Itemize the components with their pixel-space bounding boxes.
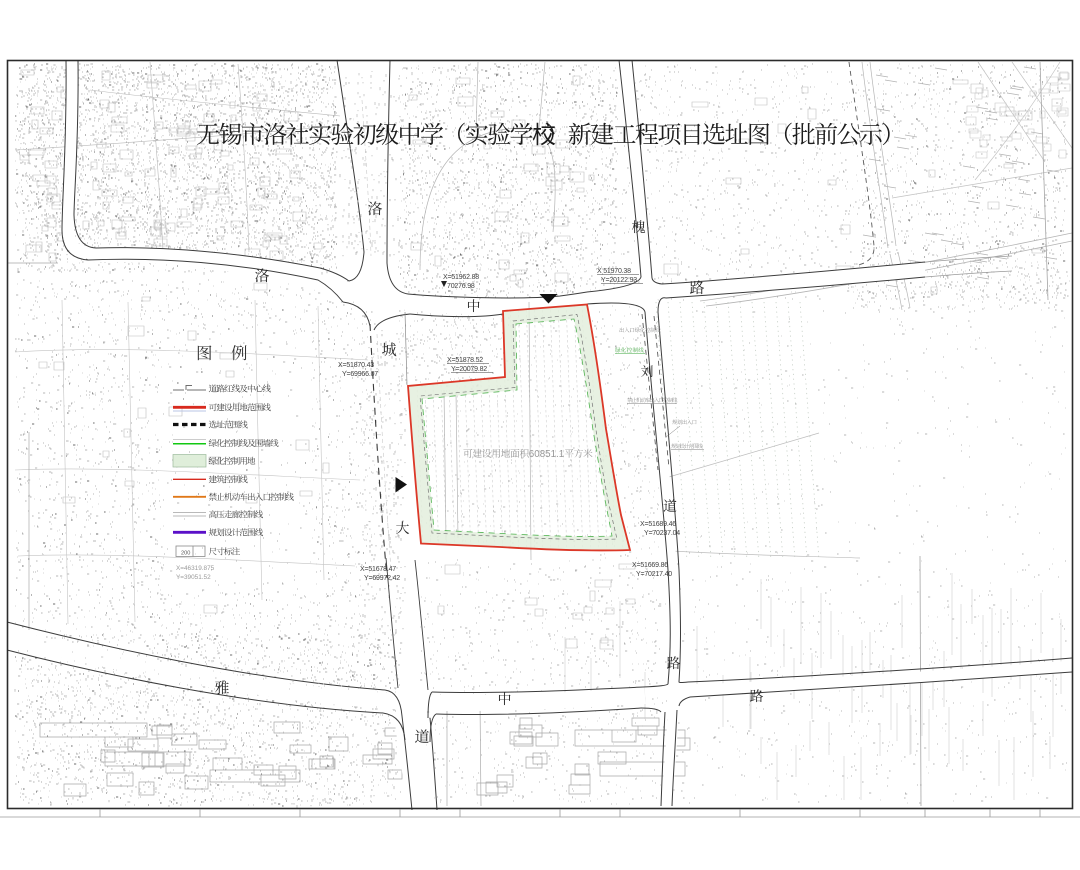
svg-text:X=51870.43: X=51870.43 [338, 362, 374, 369]
svg-text:X 51970.38: X 51970.38 [597, 268, 631, 275]
svg-text:Y=70237.04: Y=70237.04 [644, 530, 680, 537]
svg-text:Y=20079.82: Y=20079.82 [451, 366, 487, 373]
svg-text:60851.1: 60851.1 [529, 449, 564, 460]
svg-text:200: 200 [181, 550, 190, 556]
svg-text:Y=39051.52: Y=39051.52 [176, 574, 211, 581]
svg-text:Y=69966.07: Y=69966.07 [342, 371, 378, 378]
svg-text:X=51878.52: X=51878.52 [447, 357, 483, 364]
svg-text:X=51962.88: X=51962.88 [443, 274, 479, 281]
svg-text:X=51689.46: X=51689.46 [640, 521, 676, 528]
svg-text:X=51678.47: X=51678.47 [360, 566, 396, 573]
svg-text:X=51669.86: X=51669.86 [632, 562, 668, 569]
svg-text:X=46319.875: X=46319.875 [176, 565, 215, 572]
svg-text:Y=70217.40: Y=70217.40 [636, 571, 672, 578]
svg-text:Y=20122.93: Y=20122.93 [601, 277, 637, 284]
svg-text:70276.98: 70276.98 [447, 283, 475, 290]
svg-text:Y=69972.42: Y=69972.42 [364, 575, 400, 582]
